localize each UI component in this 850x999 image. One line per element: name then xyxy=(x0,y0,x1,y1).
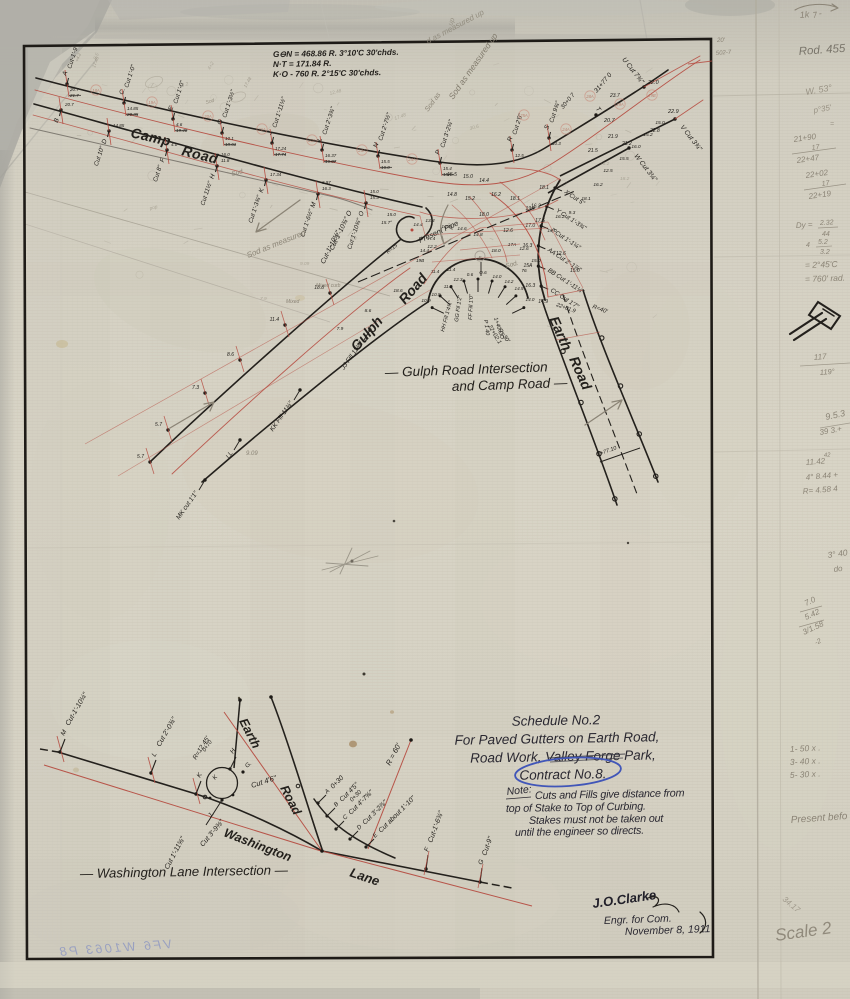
svg-text:20A: 20A xyxy=(203,114,212,119)
svg-text:15.0: 15.0 xyxy=(387,212,396,217)
svg-text:K·O - 760 R. 2°15'C 30'chds.: K·O - 760 R. 2°15'C 30'chds. xyxy=(273,68,381,79)
svg-text:Mixed curb: Mixed curb xyxy=(316,283,341,289)
svg-text:18.0: 18.0 xyxy=(491,248,501,254)
svg-text:11.4: 11.4 xyxy=(270,317,280,323)
svg-text:17.24: 17.24 xyxy=(275,146,287,151)
svg-text:Dy =: Dy = xyxy=(796,220,813,230)
svg-text:23A: 23A xyxy=(357,148,366,153)
svg-text:15.5: 15.5 xyxy=(619,156,629,162)
svg-text:17.5: 17.5 xyxy=(535,218,545,224)
svg-text:7.9: 7.9 xyxy=(260,296,267,302)
svg-text:10.9: 10.9 xyxy=(432,292,441,297)
svg-text:Contract No.8.: Contract No.8. xyxy=(519,766,606,783)
svg-text:11.4: 11.4 xyxy=(431,269,440,274)
svg-text:22A: 22A xyxy=(307,138,316,143)
svg-text:16.2: 16.2 xyxy=(593,182,603,188)
svg-text:24A: 24A xyxy=(407,157,416,162)
svg-text:Schedule No.2: Schedule No.2 xyxy=(512,712,601,729)
svg-text:16.37: 16.37 xyxy=(325,153,337,158)
svg-text:23.7: 23.7 xyxy=(609,93,620,99)
svg-text:119°: 119° xyxy=(819,367,835,377)
svg-text:14.9: 14.9 xyxy=(538,299,548,305)
svg-text:21A: 21A xyxy=(257,127,266,132)
svg-text:7.9: 7.9 xyxy=(337,326,344,332)
svg-text:5.7: 5.7 xyxy=(137,454,144,460)
svg-text:= 760' rad.: = 760' rad. xyxy=(805,273,845,284)
svg-text:7.3: 7.3 xyxy=(192,385,199,391)
svg-text:18.0: 18.0 xyxy=(479,212,489,218)
svg-text:5.2: 5.2 xyxy=(818,239,828,246)
svg-text:14.8: 14.8 xyxy=(447,192,457,198)
svg-text:4.6: 4.6 xyxy=(176,122,183,127)
svg-text:10.1: 10.1 xyxy=(225,136,234,141)
svg-text:1k ⁊ -: 1k ⁊ - xyxy=(799,8,822,20)
svg-text:8.6: 8.6 xyxy=(365,308,372,314)
svg-text:17.0: 17.0 xyxy=(547,228,557,234)
svg-text:14.85: 14.85 xyxy=(113,123,125,128)
svg-text:76: 76 xyxy=(521,268,527,274)
svg-text:11.8: 11.8 xyxy=(221,158,230,163)
svg-text:H.4: H.4 xyxy=(428,236,436,241)
svg-text:15.4: 15.4 xyxy=(443,166,452,171)
svg-text:18.2: 18.2 xyxy=(620,176,630,182)
svg-text:15.0: 15.0 xyxy=(370,189,379,194)
svg-text:20': 20' xyxy=(716,38,726,44)
svg-text:11.4: 11.4 xyxy=(447,267,456,272)
svg-text:44: 44 xyxy=(822,231,830,238)
svg-text:42: 42 xyxy=(824,452,832,459)
svg-text:18.1: 18.1 xyxy=(539,185,549,191)
svg-text:do: do xyxy=(833,564,844,574)
svg-text:19A: 19A xyxy=(148,100,156,105)
svg-text:6.97: 6.97 xyxy=(322,180,331,185)
svg-text:2.32: 2.32 xyxy=(819,219,834,227)
svg-text:9.09: 9.09 xyxy=(300,261,310,267)
svg-text:15.5: 15.5 xyxy=(447,172,457,178)
svg-text:FF Fill 1'0": FF Fill 1'0" xyxy=(468,293,475,320)
svg-text:11.8: 11.8 xyxy=(444,284,453,289)
svg-text:21.5: 21.5 xyxy=(587,148,598,154)
svg-text:3.2: 3.2 xyxy=(820,249,830,256)
svg-text:16.3: 16.3 xyxy=(322,186,331,191)
svg-text:10.3: 10.3 xyxy=(552,141,561,146)
svg-text:18.1: 18.1 xyxy=(510,196,520,202)
svg-text:22.8: 22.8 xyxy=(649,128,660,134)
svg-text:22.9: 22.9 xyxy=(667,109,679,115)
svg-text:20.7: 20.7 xyxy=(69,87,79,92)
svg-text:9.3: 9.3 xyxy=(569,210,576,216)
svg-text:12.6: 12.6 xyxy=(556,251,566,257)
svg-text:12.5: 12.5 xyxy=(515,153,524,158)
svg-text:17.34: 17.34 xyxy=(270,172,282,177)
svg-text:21.9: 21.9 xyxy=(607,134,618,140)
svg-text:1- 50 x .: 1- 50 x . xyxy=(790,742,821,754)
svg-text:12.6: 12.6 xyxy=(519,246,529,252)
svg-text:15.0: 15.0 xyxy=(463,174,473,180)
svg-text:= 2°45'C: = 2°45'C xyxy=(805,259,839,270)
svg-text:24A: 24A xyxy=(561,127,570,132)
svg-text:20.7: 20.7 xyxy=(603,118,616,124)
svg-text:9.09: 9.09 xyxy=(246,451,258,457)
svg-text:15.5: 15.5 xyxy=(381,159,390,164)
svg-text:117: 117 xyxy=(813,352,827,362)
svg-text:21.2: 21.2 xyxy=(621,141,632,147)
svg-text:4: 4 xyxy=(806,242,810,249)
svg-text:13.4: 13.4 xyxy=(425,218,435,224)
svg-text:15.0: 15.0 xyxy=(570,268,580,274)
svg-text:18A: 18A xyxy=(92,88,100,93)
svg-text:4.0: 4.0 xyxy=(171,142,178,147)
svg-text:16.2: 16.2 xyxy=(555,214,565,220)
svg-text:14.4: 14.4 xyxy=(479,178,489,184)
svg-text:19B: 19B xyxy=(416,258,424,263)
svg-text:3- 40 x .: 3- 40 x . xyxy=(790,755,821,767)
svg-text:until the engineer so directs.: until the engineer so directs. xyxy=(515,825,644,839)
svg-text:15.2: 15.2 xyxy=(465,196,475,202)
svg-text:O.6: O.6 xyxy=(479,270,487,275)
svg-text:0.6: 0.6 xyxy=(467,272,474,277)
svg-text:8.6: 8.6 xyxy=(227,352,234,358)
svg-text:14.0: 14.0 xyxy=(493,274,502,279)
svg-text:20.7: 20.7 xyxy=(64,102,74,107)
svg-text:14.85: 14.85 xyxy=(127,106,139,111)
svg-text:12.5: 12.5 xyxy=(603,168,613,174)
svg-text:16.0: 16.0 xyxy=(631,144,641,150)
svg-text:16.2: 16.2 xyxy=(600,161,610,167)
svg-text:10.9: 10.9 xyxy=(421,298,431,304)
svg-text:14.0: 14.0 xyxy=(526,297,535,302)
svg-text:15.0: 15.0 xyxy=(655,120,665,126)
svg-text:18.1: 18.1 xyxy=(581,196,591,202)
svg-text:14.4: 14.4 xyxy=(420,248,429,253)
svg-text:5- 30 x .: 5- 30 x . xyxy=(790,768,821,780)
svg-text:12.3: 12.3 xyxy=(454,277,463,282)
svg-text:22.0: 22.0 xyxy=(647,80,660,86)
svg-text:15.0: 15.0 xyxy=(531,258,541,264)
svg-text:16.0: 16.0 xyxy=(221,152,230,157)
svg-text:N·T = 171.84 R.: N·T = 171.84 R. xyxy=(273,59,332,69)
svg-text:16.3: 16.3 xyxy=(525,283,535,289)
svg-text:5.7: 5.7 xyxy=(155,422,162,428)
svg-text:28A: 28A xyxy=(585,94,594,99)
svg-text:Mixed: Mixed xyxy=(286,299,300,305)
svg-text:12.6: 12.6 xyxy=(503,228,513,234)
svg-text:=: = xyxy=(830,121,834,128)
svg-text:29A: 29A xyxy=(615,102,624,107)
svg-text:25A: 25A xyxy=(519,113,528,118)
svg-text:15.7°: 15.7° xyxy=(381,220,392,225)
svg-text:11.42: 11.42 xyxy=(805,456,826,467)
svg-text:15.3: 15.3 xyxy=(370,195,379,200)
svg-text:29B: 29B xyxy=(647,93,656,98)
svg-text:16.2: 16.2 xyxy=(491,192,501,198)
svg-text:19A: 19A xyxy=(526,206,536,212)
svg-text:14.2: 14.2 xyxy=(505,279,514,284)
svg-text:14.5: 14.5 xyxy=(515,286,524,291)
